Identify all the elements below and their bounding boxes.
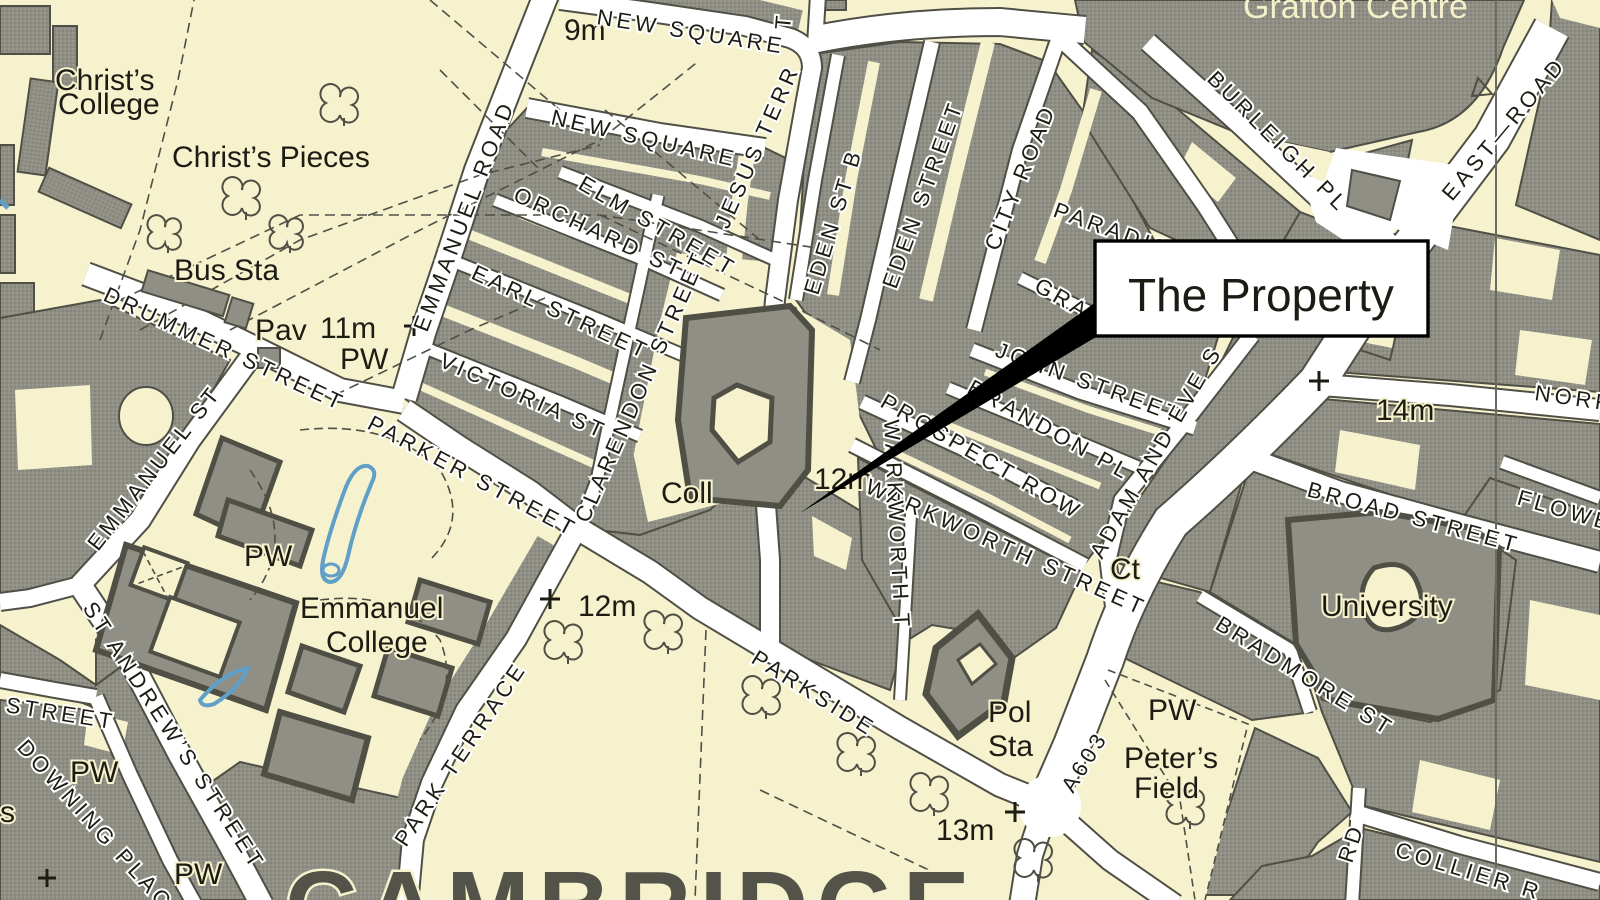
svg-text:PW: PW: [340, 343, 389, 376]
svg-text:s: s: [0, 796, 15, 829]
svg-text:Bus Sta: Bus Sta: [174, 254, 279, 287]
svg-text:12m: 12m: [578, 590, 636, 623]
svg-text:13m: 13m: [936, 814, 994, 847]
svg-text:PW: PW: [244, 540, 293, 573]
svg-text:College: College: [58, 88, 160, 121]
svg-text:Pol: Pol: [988, 696, 1031, 729]
svg-text:The Property: The Property: [1128, 269, 1394, 321]
svg-text:Emmanuel: Emmanuel: [300, 592, 443, 625]
svg-text:T: T: [770, 11, 796, 31]
svg-text:Pav: Pav: [255, 314, 307, 347]
svg-text:Sta: Sta: [988, 730, 1033, 763]
svg-text:PW: PW: [174, 858, 223, 891]
svg-text:14m: 14m: [1376, 394, 1434, 427]
svg-text:PW: PW: [1148, 694, 1197, 727]
svg-text:University: University: [1321, 590, 1453, 623]
svg-text:Peter’s: Peter’s: [1124, 742, 1218, 775]
svg-text:PW: PW: [70, 756, 119, 789]
svg-text:Field: Field: [1134, 772, 1199, 805]
svg-text:11m: 11m: [320, 312, 376, 345]
svg-text:Christ’s Pieces: Christ’s Pieces: [172, 141, 370, 174]
svg-text:College: College: [326, 626, 428, 659]
svg-text:Coll: Coll: [661, 477, 713, 510]
svg-text:CAMBRIDGE: CAMBRIDGE: [285, 851, 978, 900]
svg-text:Grafton Centre: Grafton Centre: [1243, 0, 1468, 26]
